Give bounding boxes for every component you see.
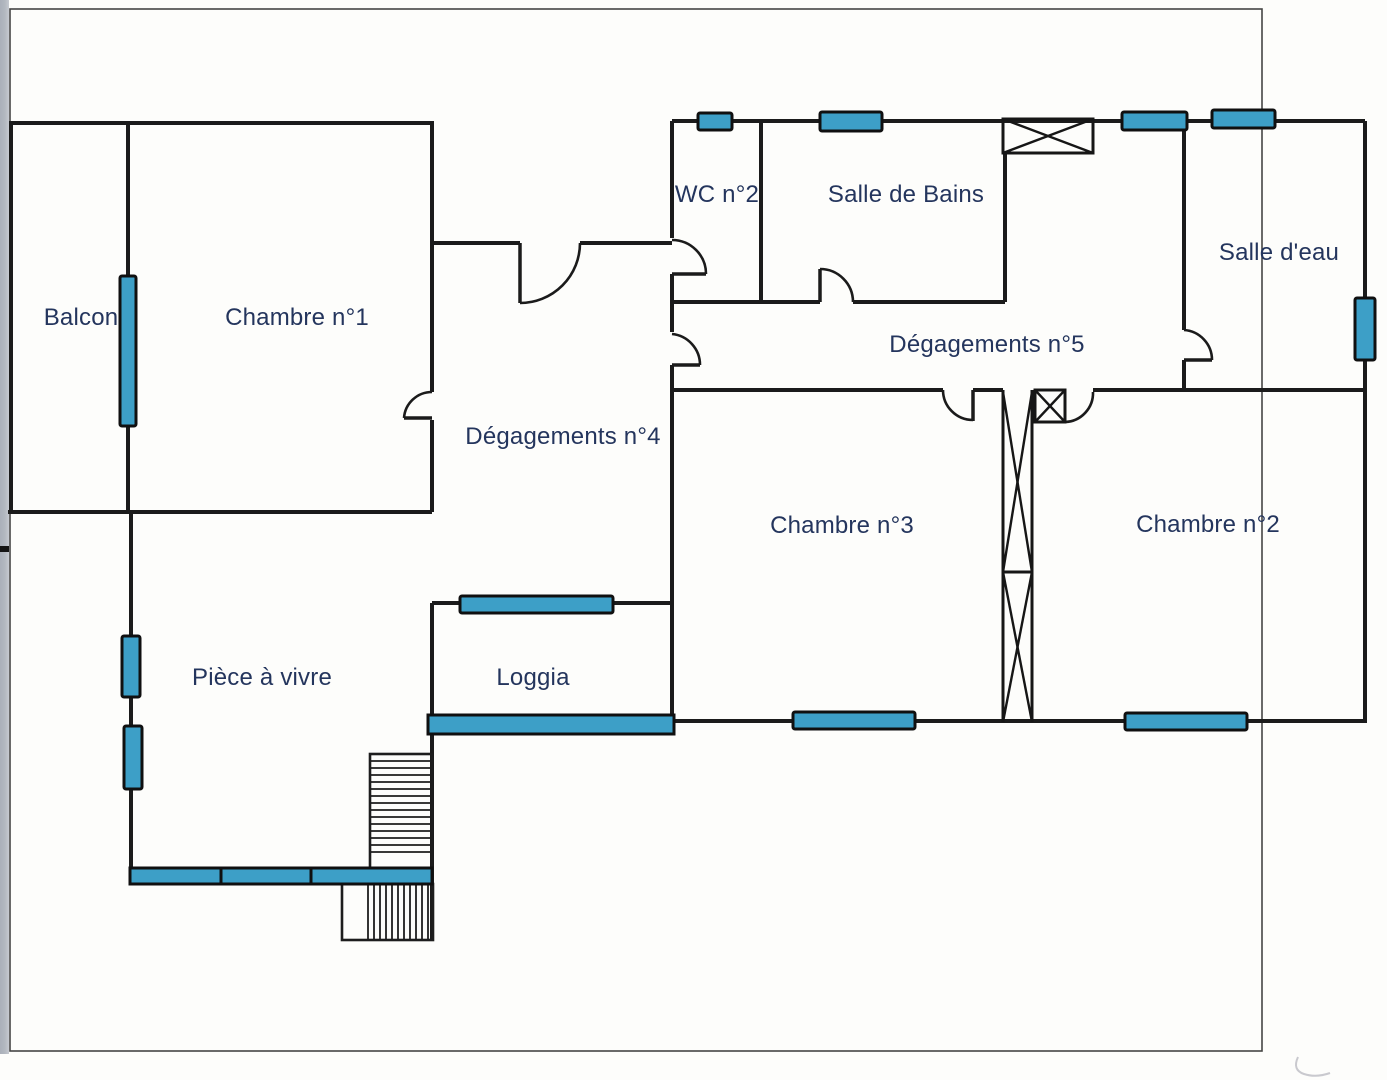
room-label-wc-2: WC n°2 [675,181,759,209]
duct-shaft-column [1003,390,1065,722]
room-label-piece-a-vivre: Pièce à vivre [192,664,332,692]
living-room-glazing-band [130,868,432,884]
sheet-border [10,9,1262,1051]
window [1355,298,1375,360]
room-label-chambre-3: Chambre n°3 [770,512,914,540]
room-label-chambre-1: Chambre n°1 [225,304,369,332]
staircase-interior [370,754,432,868]
room-label-salle-d-eau: Salle d'eau [1219,239,1339,267]
room-label-balcon: Balcon [44,304,119,332]
room-label-salle-de-bains: Salle de Bains [828,181,984,209]
window [460,596,613,613]
duct-box-bathroom [1003,119,1093,153]
window [120,276,136,426]
window [1122,112,1187,130]
staircase-exterior [342,884,433,940]
room-label-chambre-2: Chambre n°2 [1136,511,1280,539]
room-label-loggia: Loggia [496,664,569,692]
windows [120,110,1375,884]
window [793,712,915,729]
pencil-mark [1296,1057,1330,1076]
scanned-floor-plan: Balcon Chambre n°1 WC n°2 Salle de Bains… [0,0,1387,1080]
room-label-degagements-5: Dégagements n°5 [889,331,1084,359]
room-label-degagements-4: Dégagements n°4 [465,423,660,451]
loggia-glazing-band [428,715,674,734]
window [820,112,882,131]
door-arcs [404,240,1212,422]
window [1212,110,1275,128]
floor-plan-drawing [0,0,1387,1080]
window [698,113,732,130]
window [122,636,140,697]
window [1125,713,1247,730]
window [124,726,142,789]
